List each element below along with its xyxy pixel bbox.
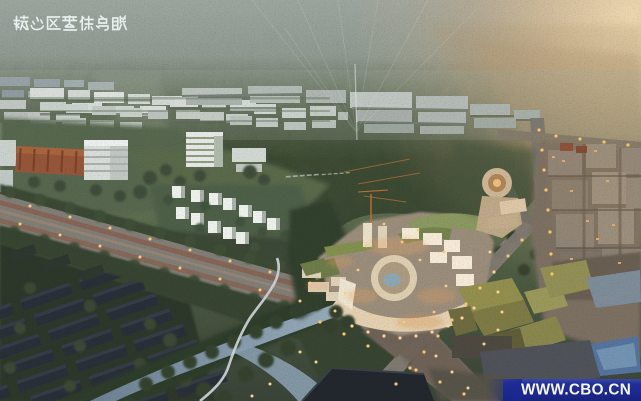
svg-text:WWW.CBO.CN: WWW.CBO.CN [521, 382, 631, 399]
